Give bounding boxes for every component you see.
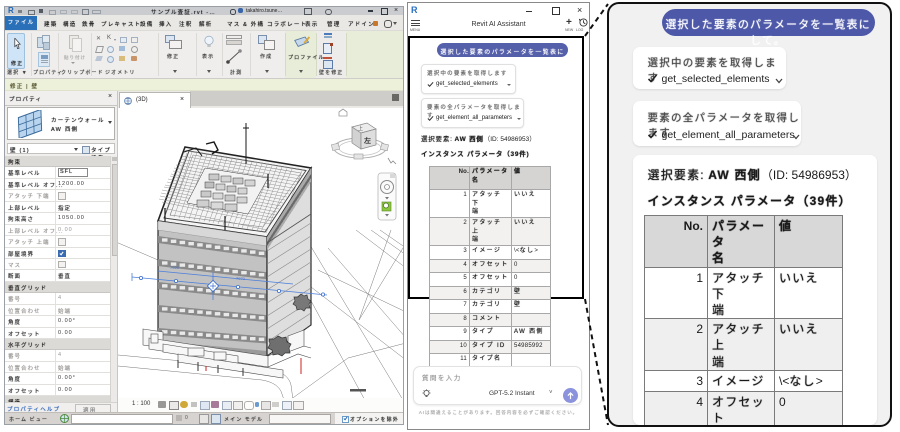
svg-text:左: 左 [363, 136, 371, 145]
svg-text:7970: 7970 [236, 276, 246, 281]
svg-text:上: 上 [358, 125, 363, 132]
svg-text:7929: 7929 [170, 265, 180, 270]
